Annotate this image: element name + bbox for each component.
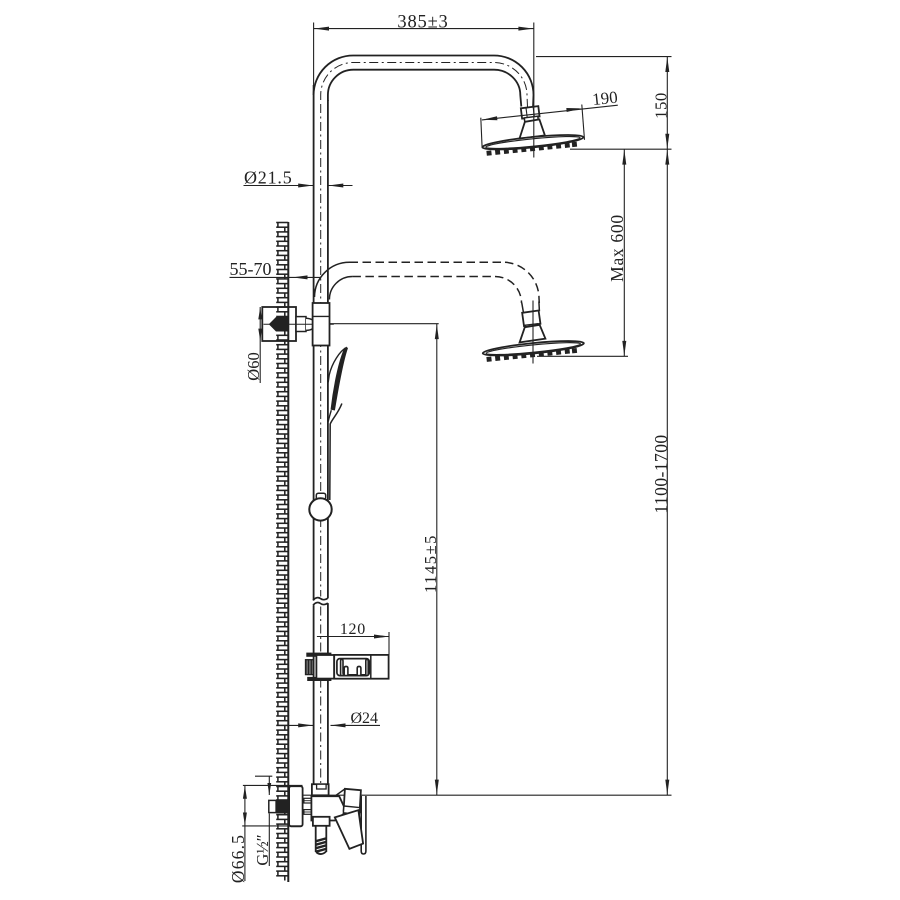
svg-text:1145±5: 1145±5 [421, 534, 440, 593]
svg-text:Ø66.5: Ø66.5 [228, 834, 248, 883]
svg-text:55-70: 55-70 [230, 259, 272, 279]
svg-text:Ø21.5: Ø21.5 [244, 168, 293, 188]
svg-text:120: 120 [340, 621, 366, 638]
svg-text:Ø24: Ø24 [351, 710, 379, 727]
svg-text:150: 150 [651, 92, 670, 119]
svg-text:Ø60: Ø60 [244, 352, 263, 380]
svg-text:190: 190 [591, 88, 618, 110]
svg-text:G½″: G½″ [253, 834, 272, 865]
svg-text:Max 600: Max 600 [607, 214, 627, 282]
svg-text:385±3: 385±3 [397, 13, 448, 33]
svg-text:1100-1700: 1100-1700 [651, 434, 671, 513]
